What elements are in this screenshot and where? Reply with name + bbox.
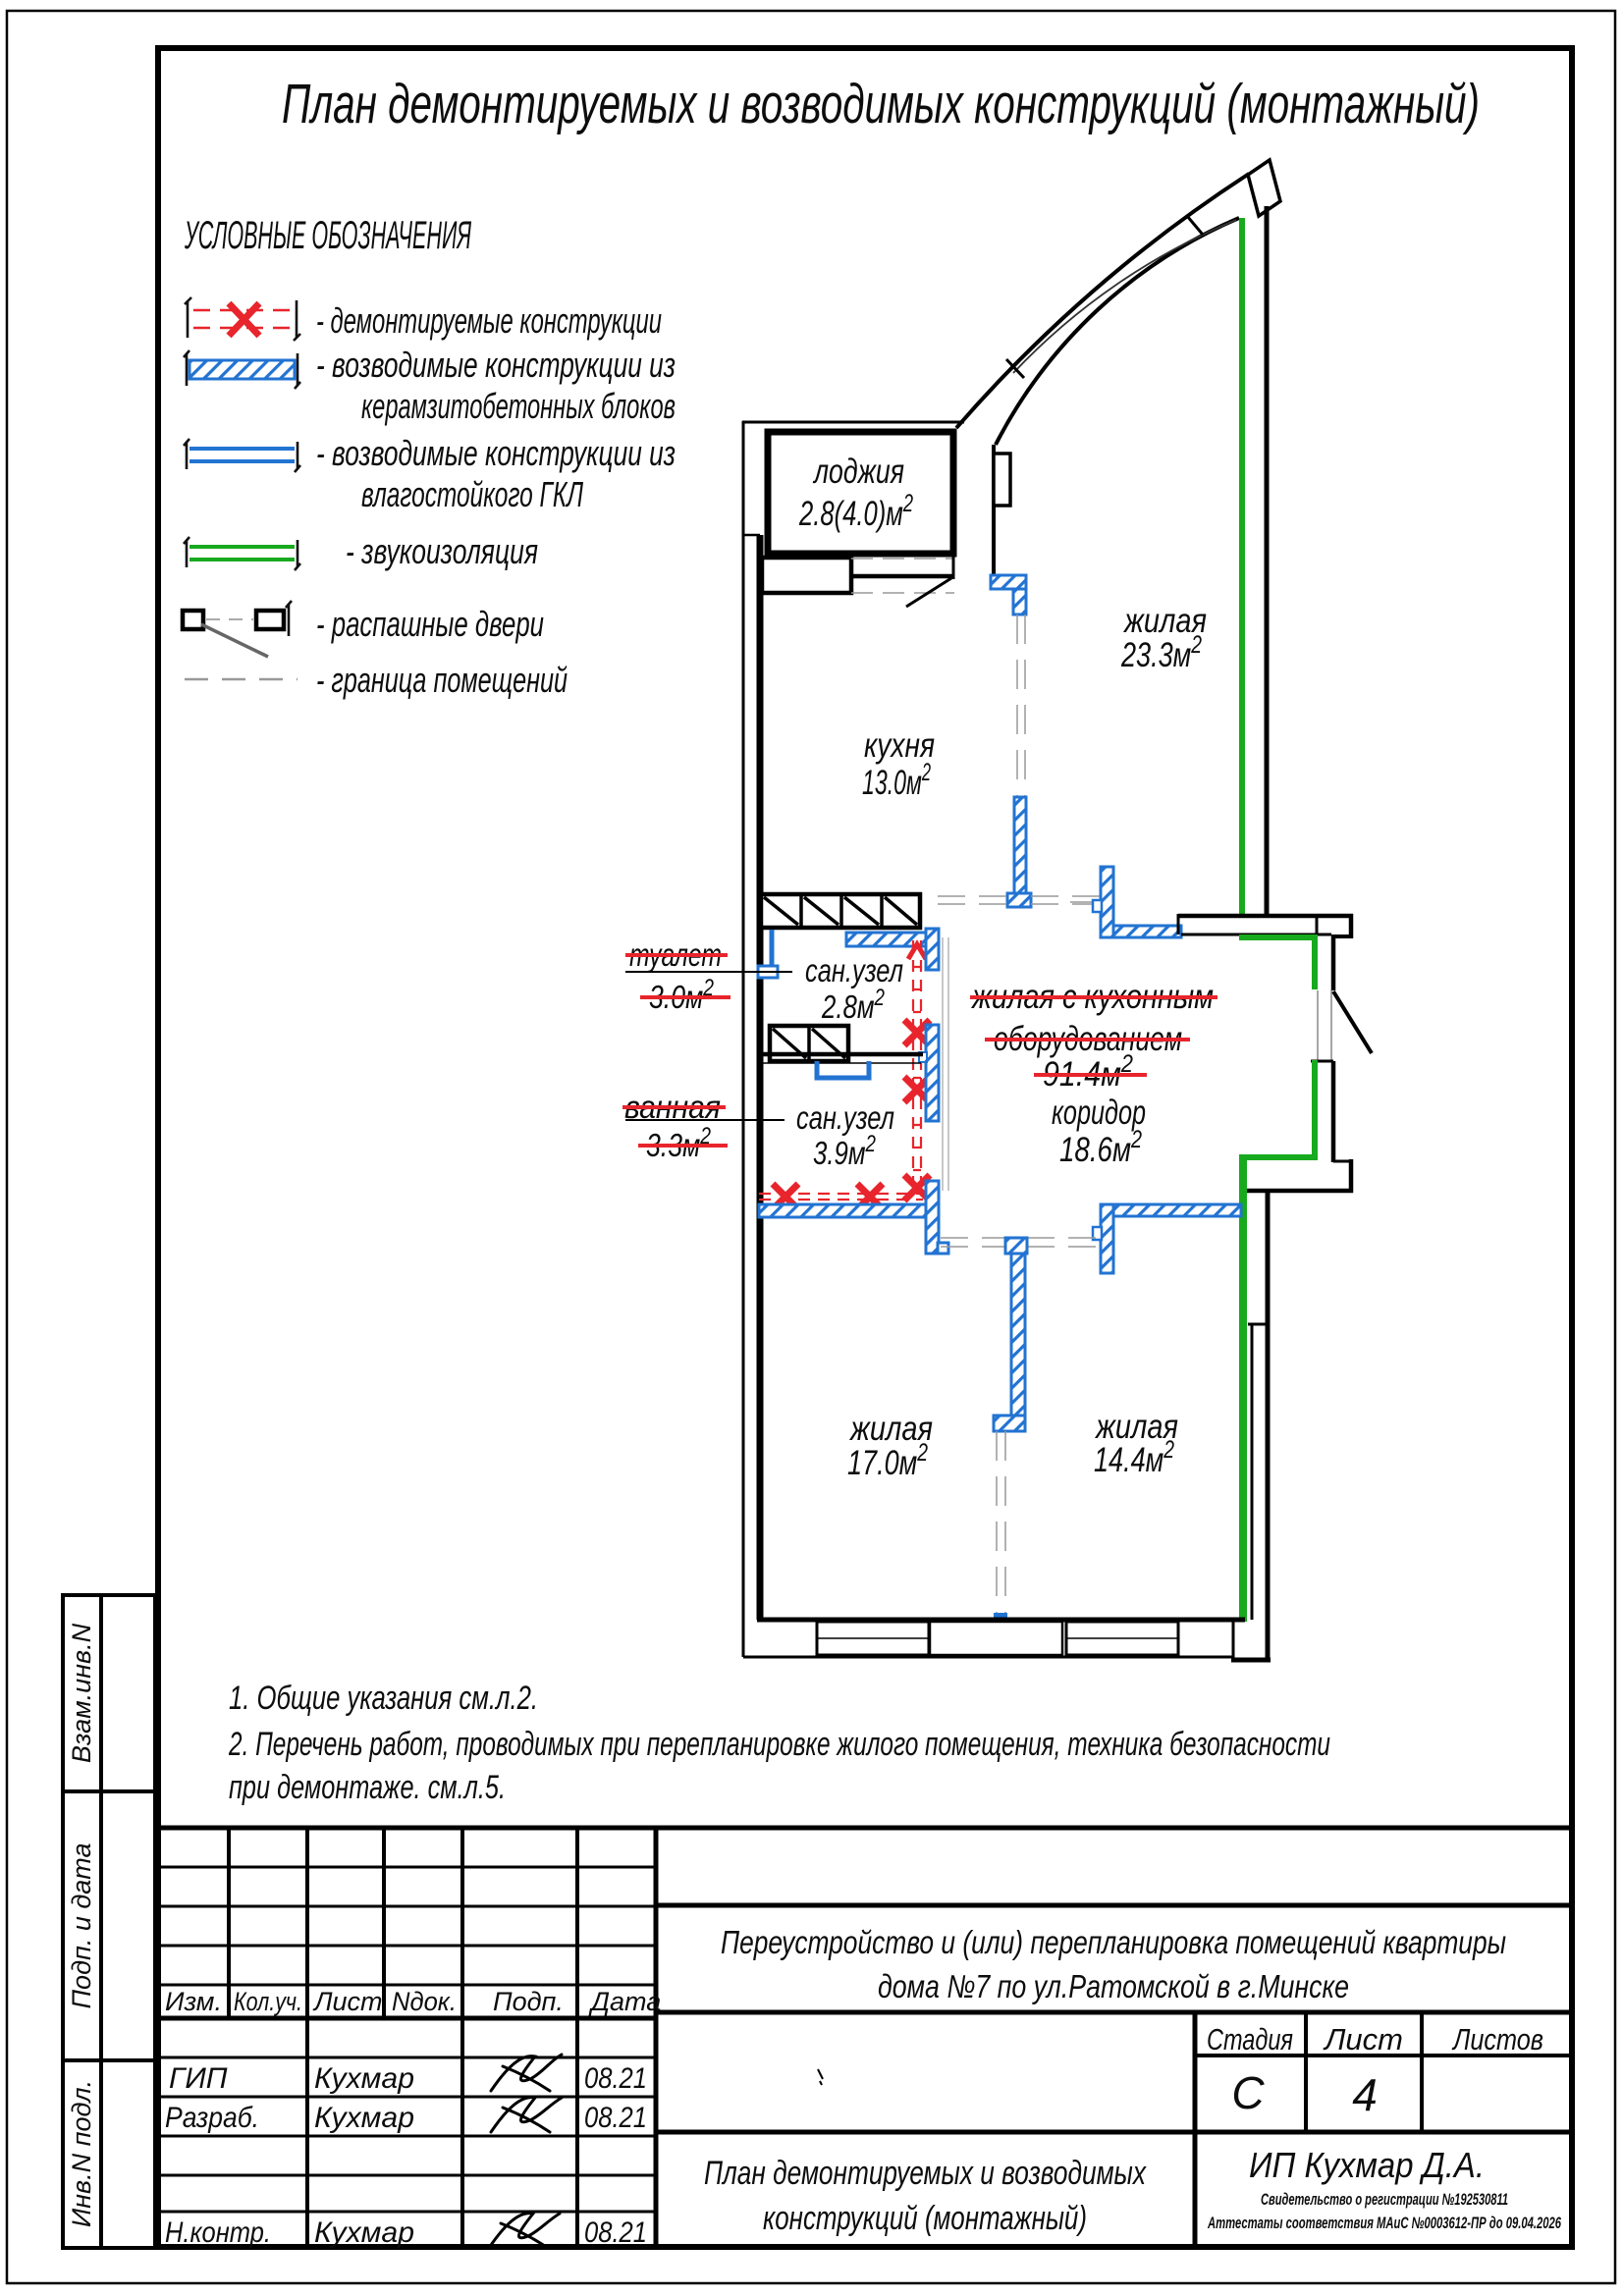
svg-text:Свидетельство о регистрации №1: Свидетельство о регистрации №192530811 (1261, 2191, 1508, 2209)
svg-text:17.0м2: 17.0м2 (847, 1439, 928, 1482)
svg-text:Nдок.: Nдок. (392, 1987, 457, 2016)
svg-text:Подп.: Подп. (493, 1987, 564, 2016)
svg-text:Лист: Лист (312, 1987, 383, 2016)
svg-text:План демонтируемых и возводимы: План демонтируемых и возводимых (704, 2155, 1147, 2192)
svg-text:С: С (1231, 2067, 1265, 2118)
svg-text:влагостойкого ГКЛ: влагостойкого ГКЛ (361, 474, 583, 514)
svg-text:08.21: 08.21 (584, 2102, 647, 2134)
svg-text:Дата: Дата (588, 1987, 661, 2016)
svg-text:Лист: Лист (1323, 2022, 1403, 2056)
svg-text:при демонтаже. см.л.5.: при демонтаже. см.л.5. (229, 1769, 506, 1806)
svg-text:ГИП: ГИП (169, 2062, 228, 2095)
svg-text:Изм.: Изм. (165, 1987, 222, 2016)
svg-text:08.21: 08.21 (584, 2062, 647, 2095)
svg-text:- демонтируемые конструкции: - демонтируемые конструкции (316, 300, 662, 341)
svg-text:Подп. и дата: Подп. и дата (67, 1842, 96, 2008)
svg-text:18.6м2: 18.6м2 (1059, 1126, 1142, 1169)
svg-text:сан.узел: сан.узел (805, 952, 903, 988)
svg-text:- граница помещений: - граница помещений (316, 660, 568, 700)
svg-text:Кол.уч.: Кол.уч. (234, 1987, 302, 2016)
svg-text:14.4м2: 14.4м2 (1094, 1436, 1174, 1479)
svg-text:Кухмар: Кухмар (314, 2102, 414, 2134)
svg-text:2.8(4.0)м2: 2.8(4.0)м2 (798, 490, 913, 533)
svg-text:Аттестаты соответствия МАиС №0: Аттестаты соответствия МАиС №0003612-ПР … (1207, 2215, 1561, 2232)
svg-text:Листов: Листов (1451, 2022, 1543, 2056)
svg-text:91.4м2: 91.4м2 (1043, 1050, 1133, 1094)
svg-text:- распашные двери: - распашные двери (316, 604, 544, 644)
svg-text:13.0м2: 13.0м2 (862, 759, 931, 802)
svg-text:1. Общие указания см.л.2.: 1. Общие указания см.л.2. (229, 1680, 538, 1717)
svg-text:- звукоизоляция: - звукоизоляция (346, 531, 538, 571)
svg-text:2. Перечень работ, проводимых: 2. Перечень работ, проводимых при перепл… (228, 1726, 1330, 1763)
svg-text:Разраб.: Разраб. (165, 2102, 259, 2134)
svg-text:конструкций (монтажный): конструкций (монтажный) (763, 2200, 1087, 2237)
svg-text:08.21: 08.21 (584, 2216, 647, 2249)
svg-text:Кухмар: Кухмар (314, 2062, 414, 2095)
svg-text:План демонтируемых и возводимы: План демонтируемых и возводимых конструк… (282, 73, 1480, 135)
svg-text:сан.узел: сан.узел (796, 1099, 894, 1136)
svg-text:керамзитобетонных блоков: керамзитобетонных блоков (361, 386, 676, 426)
svg-text:23.3м2: 23.3м2 (1120, 631, 1202, 674)
svg-text:Взам.инв.N: Взам.инв.N (67, 1623, 96, 1763)
svg-text:Н.контр.: Н.контр. (165, 2216, 271, 2249)
svg-text:дома №7 по ул.Ратомской в г.Ми: дома №7 по ул.Ратомской в г.Минске (878, 1968, 1349, 2004)
svg-text:Переустройство и (или) перепла: Переустройство и (или) перепланировка по… (721, 1924, 1506, 1960)
svg-text:- возводимые конструкции из: - возводимые конструкции из (316, 345, 676, 385)
svg-text:Стадия: Стадия (1207, 2022, 1293, 2056)
svg-text:4: 4 (1352, 2069, 1378, 2120)
svg-text:- возводимые конструкции из: - возводимые конструкции из (316, 433, 676, 473)
svg-text:Кухмар: Кухмар (314, 2216, 414, 2249)
svg-text:ИП Кухмар Д.А.: ИП Кухмар Д.А. (1249, 2145, 1485, 2185)
svg-text:лоджия: лоджия (812, 453, 904, 491)
svg-text:УСЛОВНЫЕ ОБОЗНАЧЕНИЯ: УСЛОВНЫЕ ОБОЗНАЧЕНИЯ (184, 214, 471, 257)
svg-text:Инв.N подл.: Инв.N подл. (67, 2080, 96, 2227)
